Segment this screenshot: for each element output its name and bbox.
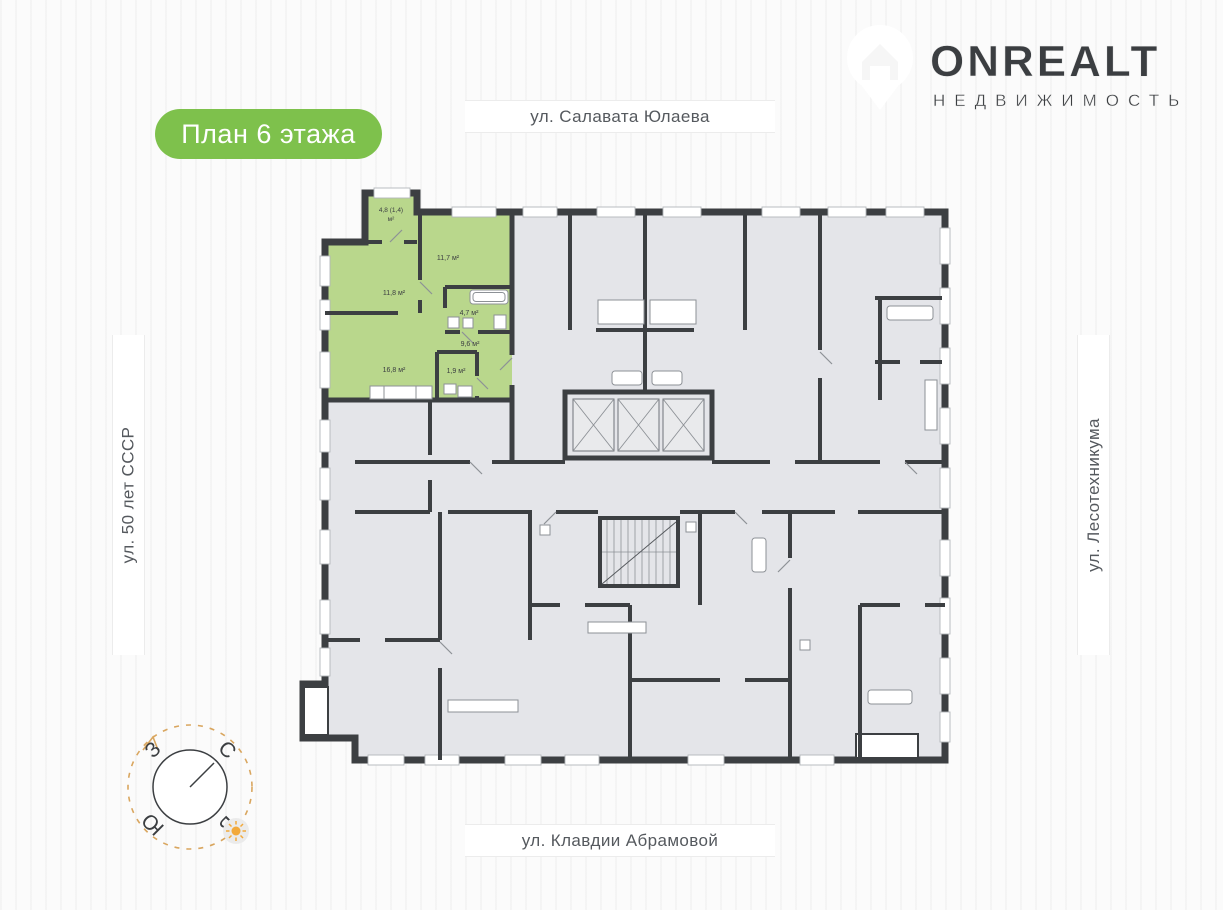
label-room-a: 11,7 м² — [437, 255, 460, 262]
floor-badge: План 6 этажа — [155, 109, 382, 159]
label-hallway: 9,6 м² — [461, 341, 480, 348]
sun-icon — [223, 818, 249, 844]
label-bathroom: 4,7 м² — [460, 310, 479, 317]
street-right-text: ул. Лесотехникума — [1084, 418, 1104, 572]
label-room-b: 11,8 м² — [383, 290, 406, 297]
label-balcony-unit: м² — [388, 216, 395, 223]
street-label-left: ул. 50 лет СССР — [112, 335, 145, 655]
logo-pin-icon — [847, 25, 913, 110]
compass-north: С — [214, 737, 241, 764]
street-label-bottom: ул. Клавдии Абрамовой — [465, 824, 775, 857]
staircase — [600, 518, 678, 586]
street-left-text: ул. 50 лет СССР — [119, 427, 139, 564]
logo-brand-text: ONREALT — [930, 37, 1160, 86]
onrealt-logo: ONREALT НЕДВИЖИМОСТЬ — [838, 16, 1208, 116]
label-wc: 1,9 м² — [447, 368, 466, 375]
floor-badge-label: План 6 этажа — [181, 119, 355, 150]
label-kitchen: 16,8 м² — [383, 367, 406, 374]
label-balcony: 4,8 (1,4) — [379, 207, 403, 214]
street-label-top: ул. Салавата Юлаева — [465, 100, 775, 133]
street-bottom-text: ул. Клавдии Абрамовой — [522, 831, 719, 851]
logo-subtitle-text: НЕДВИЖИМОСТЬ — [933, 91, 1188, 110]
compass: С В Ю З — [95, 692, 285, 882]
elevator-core — [565, 392, 712, 458]
street-top-text: ул. Салавата Юлаева — [530, 107, 710, 127]
listing-floor-plan-image: 4,8 (1,4) м² 11,7 м² 11,8 м² 4,7 м² 9,6 … — [0, 0, 1223, 910]
compass-west: З — [140, 737, 165, 762]
street-label-right: ул. Лесотехникума — [1077, 335, 1110, 655]
